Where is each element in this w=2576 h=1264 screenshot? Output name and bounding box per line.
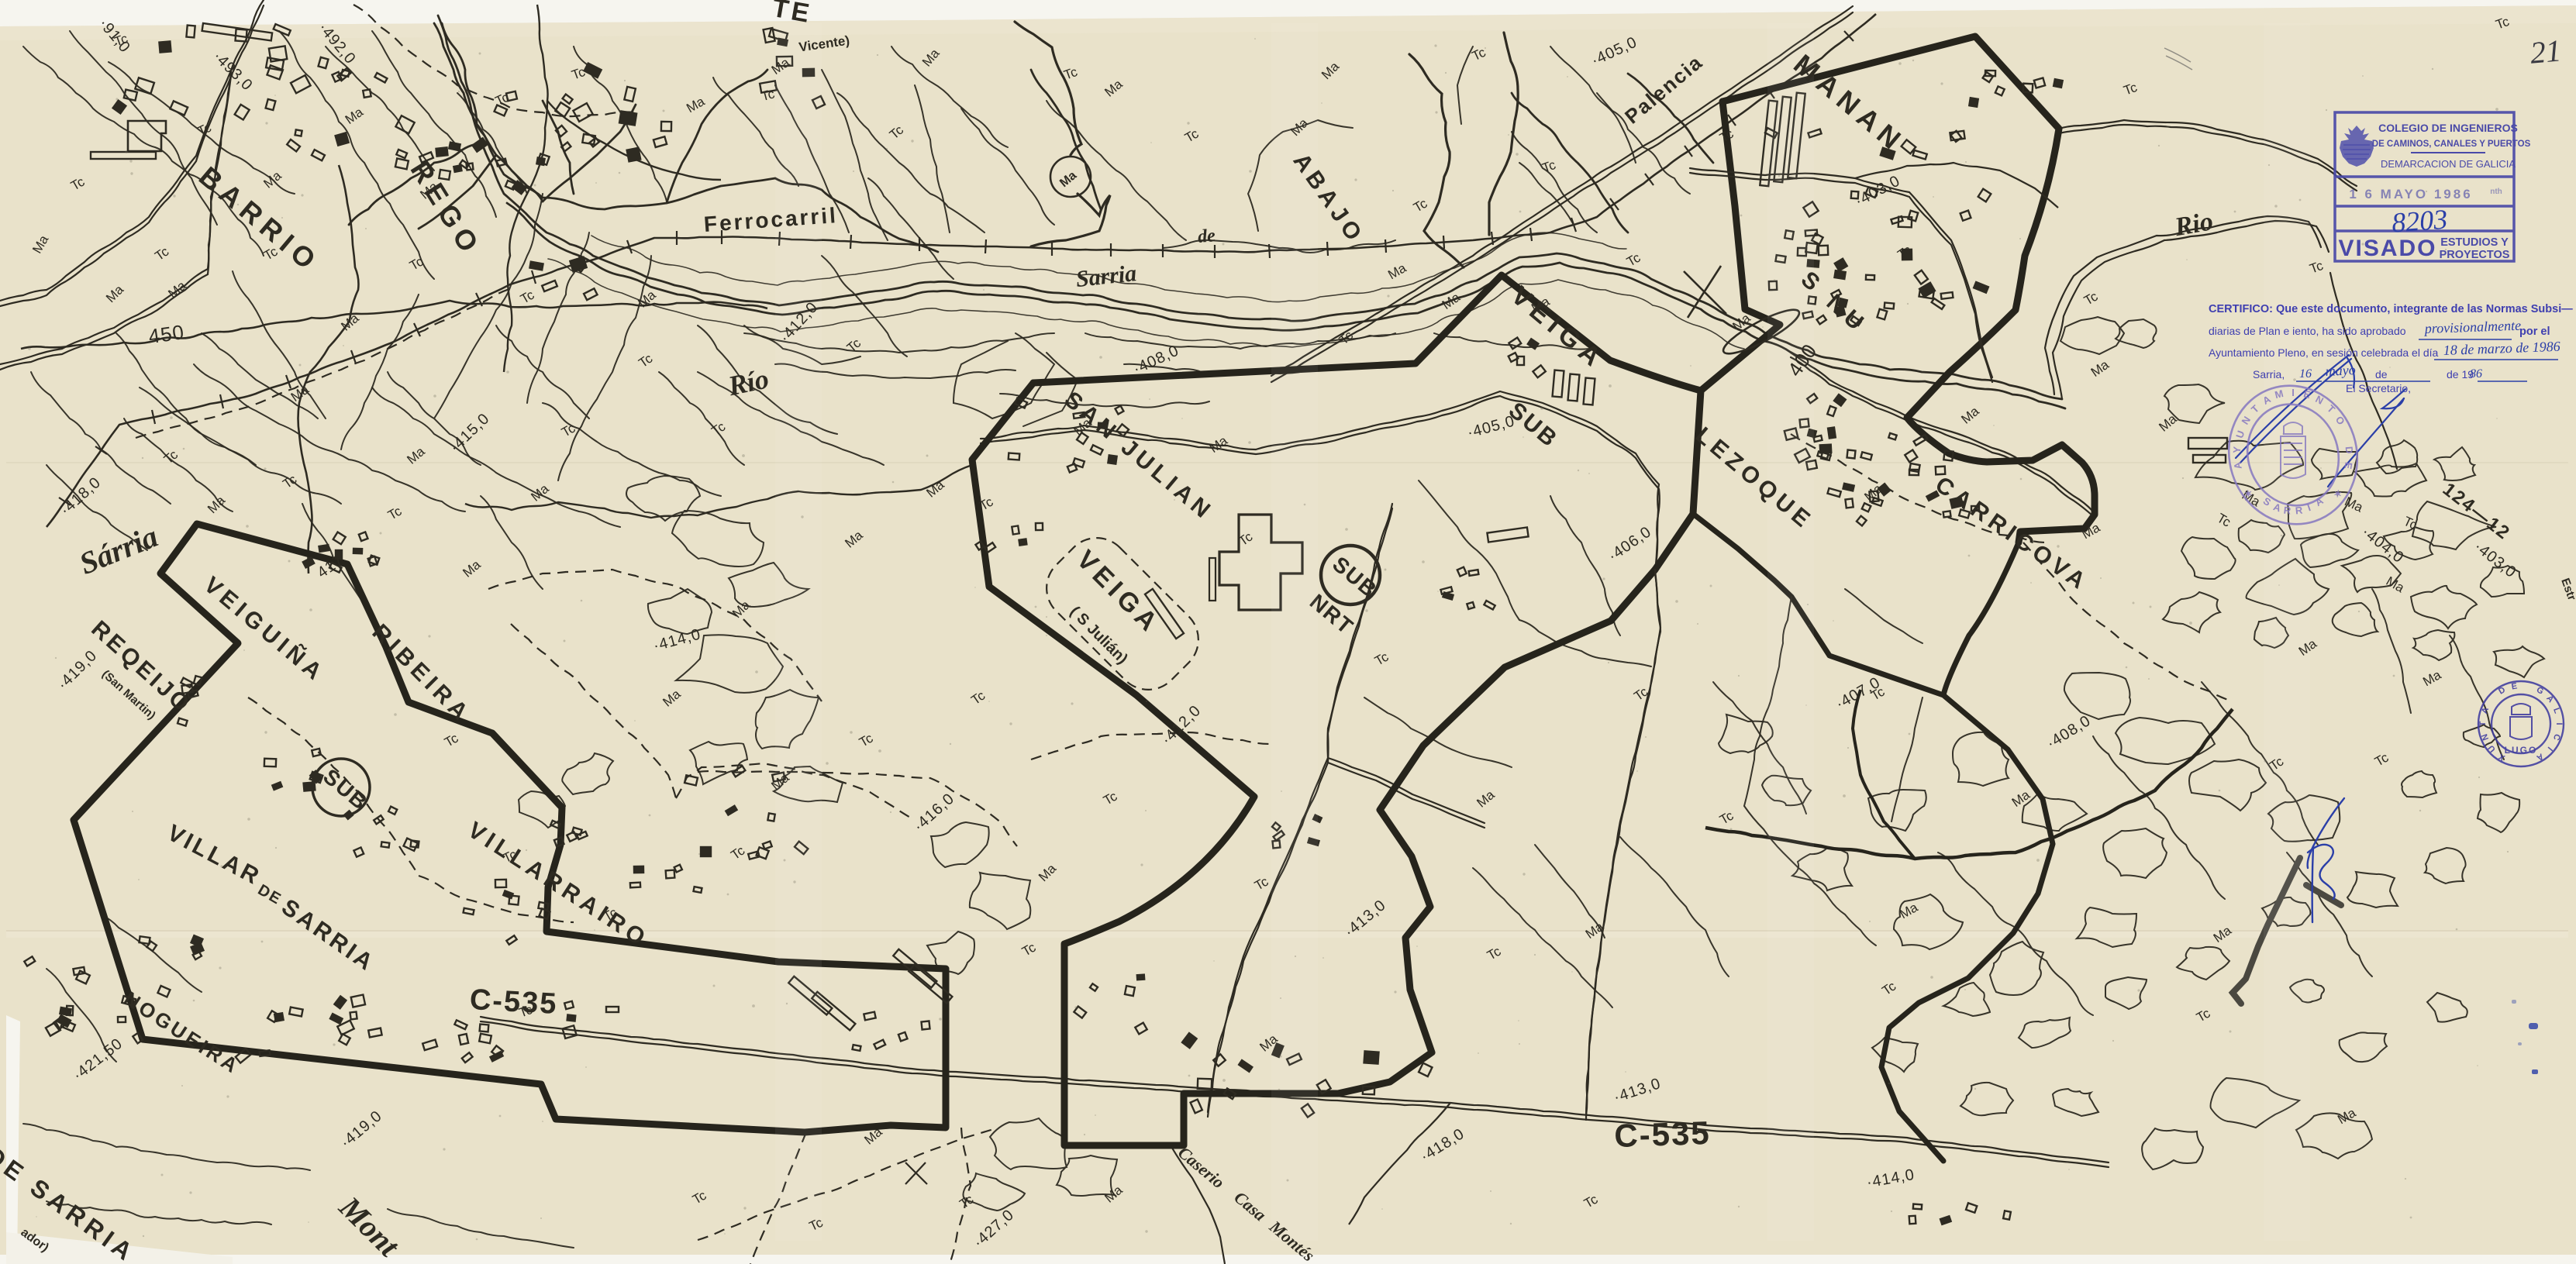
svg-text:DEMARCACION DE GALICIA: DEMARCACION DE GALICIA (2381, 158, 2516, 170)
svg-text:de: de (2375, 368, 2388, 381)
svg-text:ESTUDIOS Y: ESTUDIOS Y (2440, 236, 2509, 249)
svg-text:VISADO: VISADO (2338, 236, 2436, 261)
svg-text:1 6 MAYO 1986: 1 6 MAYO 1986 (2349, 187, 2472, 201)
svg-text:21: 21 (2529, 33, 2563, 70)
svg-text:Y: Y (2231, 446, 2243, 453)
svg-text:86: 86 (2470, 367, 2482, 381)
svg-text:I: I (2292, 387, 2295, 398)
svg-text:C-535: C-535 (1614, 1114, 1712, 1154)
svg-text:Sarria,: Sarria, (2253, 368, 2285, 381)
svg-text:16: 16 (2299, 367, 2312, 381)
svg-text:CERTIFICO: Que este documento,: CERTIFICO: Que este documento, integrant… (2209, 303, 2573, 315)
svg-text:LUGO: LUGO (2505, 745, 2538, 756)
svg-text:C-535: C-535 (469, 983, 559, 1021)
svg-text:450: 450 (147, 320, 186, 348)
svg-text:diarias de Plan e iento, ha s: diarias de Plan e iento, ha sido aprobad… (2209, 325, 2406, 337)
svg-text:8203: 8203 (2391, 204, 2449, 239)
svg-text:COLEGIO DE INGENIEROS: COLEGIO DE INGENIEROS (2378, 122, 2518, 134)
svg-text:de: de (1197, 226, 1216, 247)
svg-text:por el: por el (2519, 325, 2550, 338)
svg-text:PROYECTOS: PROYECTOS (2440, 249, 2510, 261)
svg-text:I: I (2554, 722, 2564, 725)
svg-text:nth: nth (2490, 188, 2502, 196)
svg-text:T: T (2478, 721, 2488, 726)
svg-text:D: D (2343, 446, 2356, 454)
svg-text:Ayuntamiento Pleno, en sesión: Ayuntamiento Pleno, en sesión celebrada … (2209, 346, 2438, 359)
svg-text:DE CAMINOS, CANALES Y PUERTOS: DE CAMINOS, CANALES Y PUERTOS (2372, 139, 2531, 149)
